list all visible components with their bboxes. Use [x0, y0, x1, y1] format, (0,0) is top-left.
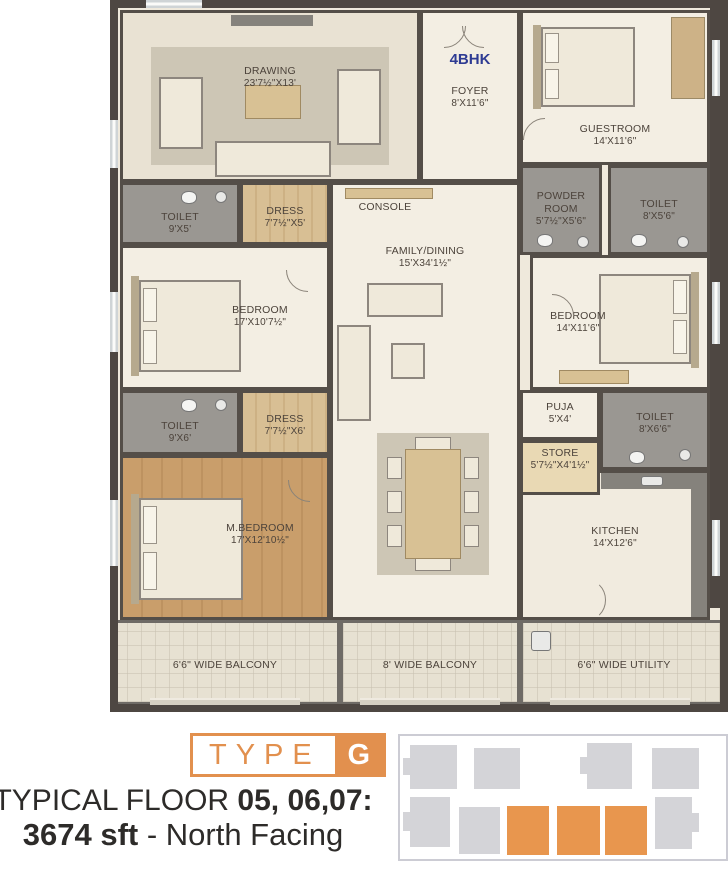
balcony-railing — [550, 698, 690, 705]
room-label-store: STORE 5'7½"X4'1½" — [523, 447, 597, 473]
dining-chair — [387, 525, 402, 547]
room-label-drawing: DRAWING 23'7½"X13' — [123, 65, 417, 91]
dining-chair — [387, 457, 402, 479]
kitchen-sink — [641, 476, 663, 486]
pillow — [143, 330, 157, 364]
key-plan-unit — [474, 748, 520, 789]
window — [712, 282, 720, 344]
key-plan-unit — [459, 807, 500, 854]
room-name: TOILET — [123, 211, 237, 224]
room-name: GUESTROOM — [523, 123, 707, 136]
room-label-kitchen: KITCHEN 14'X12'6" — [523, 525, 707, 551]
wc — [181, 399, 197, 412]
room-utility: 6'6" WIDE UTILITY — [520, 620, 728, 705]
room-label-powder: POWDER ROOM 5'7½"X5'6" — [523, 190, 599, 229]
wc — [629, 451, 645, 464]
key-plan-unit — [410, 797, 450, 847]
caption-area-facing: - North Facing — [138, 817, 343, 852]
room-name: DRAWING — [123, 65, 417, 78]
room-label-toilet-bedroom2: TOILET 8'X6'6" — [603, 411, 707, 437]
bed-headboard — [691, 272, 699, 368]
room-dims: 8'X5'6" — [611, 211, 707, 224]
room-balcony-center: 8' WIDE BALCONY — [340, 620, 520, 705]
room-name: TOILET — [123, 420, 237, 433]
room-label-toilet-guest: TOILET 8'X5'6" — [611, 198, 707, 224]
console-table — [345, 188, 433, 199]
room-dims: 14'X12'6" — [523, 538, 707, 551]
room-name: PUJA — [523, 401, 597, 414]
room-name: POWDER ROOM — [523, 190, 599, 216]
tv-unit — [231, 15, 313, 26]
room-dims: 7'7½"X6' — [243, 426, 327, 439]
sofa — [215, 141, 331, 177]
dining-chair — [464, 525, 479, 547]
room-master-bedroom: M.BEDROOM 17'X12'10½" — [120, 455, 330, 620]
pillow — [545, 69, 559, 99]
room-guestroom: GUESTROOM 14'X11'6" — [520, 10, 710, 165]
room-dims: 5'X4' — [523, 414, 597, 427]
room-name: 6'6" WIDE BALCONY — [113, 659, 337, 672]
room-dims: 8'X6'6" — [603, 424, 707, 437]
bed-headboard — [131, 494, 139, 604]
room-dims: 9'X6' — [123, 433, 237, 446]
room-balcony-left: 6'6" WIDE BALCONY — [110, 620, 340, 705]
room-toilet-bedroom2: TOILET 8'X6'6" — [600, 390, 710, 470]
caption-area-size: 3674 sft — [23, 817, 138, 852]
room-name: TOILET — [611, 198, 707, 211]
caption-floors-prefix: TYPICAL FLOOR — [0, 784, 237, 817]
dining-chair — [415, 558, 451, 571]
room-dims: 15'X34'1½" — [333, 258, 517, 271]
utility-sink — [531, 631, 551, 651]
room-name: FOYER — [423, 85, 517, 98]
room-bedroom1: BEDROOM 17'X10'7½" — [120, 245, 330, 390]
pillow — [673, 320, 687, 354]
key-plan-unit — [652, 748, 699, 789]
console-label: CONSOLE — [333, 201, 437, 214]
room-name: CONSOLE — [333, 201, 437, 214]
dining-table — [405, 449, 461, 559]
room-dims: 7'7½"X5' — [243, 218, 327, 231]
wc — [537, 234, 553, 247]
room-label-toilet1: TOILET 9'X5' — [123, 211, 237, 237]
room-name: KITCHEN — [523, 525, 707, 538]
room-family-dining: CONSOLE FAMILY/DINING 15'X34'1½" — [330, 182, 520, 620]
key-plan-unit — [655, 797, 692, 849]
room-dress-bedroom1: DRESS 7'7½"X5' — [240, 182, 330, 245]
pillow — [143, 506, 157, 544]
room-toilet-bedroom1: TOILET 9'X5' — [120, 182, 240, 245]
room-name: FAMILY/DINING — [333, 245, 517, 258]
pillow — [143, 288, 157, 322]
key-plan — [398, 734, 728, 861]
caption-floors-numbers: 05, 06,07: — [237, 784, 372, 817]
armchair — [391, 343, 425, 379]
room-label-utility: 6'6" WIDE UTILITY — [523, 659, 725, 672]
bench — [559, 370, 629, 384]
room-dims: 8'X11'6" — [423, 98, 517, 111]
type-badge-letter: G — [335, 736, 383, 774]
room-drawing: DRAWING 23'7½"X13' — [120, 10, 420, 182]
room-label-foyer: FOYER 8'X11'6" — [423, 85, 517, 111]
pillow — [545, 33, 559, 63]
room-name: BEDROOM — [533, 310, 623, 323]
key-plan-unit — [410, 745, 457, 789]
room-name: DRESS — [243, 413, 327, 426]
floor-plan: DRAWING 23'7½"X13' 4BHK FOYER 8'X11'6" G… — [110, 0, 728, 712]
room-name: TOILET — [603, 411, 707, 424]
bed-headboard — [131, 276, 139, 376]
room-label-toilet-master: TOILET 9'X6' — [123, 420, 237, 446]
room-label-master-bedroom: M.BEDROOM 17'X12'10½" — [193, 522, 327, 548]
key-plan-unit — [587, 743, 632, 789]
room-label-guestroom: GUESTROOM 14'X11'6" — [523, 123, 707, 149]
room-dims: 9'X5' — [123, 224, 237, 237]
dining-chair — [464, 457, 479, 479]
window — [712, 520, 720, 576]
key-plan-unit-highlighted — [507, 806, 549, 855]
window — [110, 292, 118, 352]
room-label-bedroom2: BEDROOM 14'X11'6" — [533, 310, 623, 336]
room-name: 8' WIDE BALCONY — [343, 659, 517, 672]
room-name: 6'6" WIDE UTILITY — [523, 659, 725, 672]
room-dims: 14'X11'6" — [533, 323, 623, 336]
wardrobe — [671, 17, 705, 99]
balcony-railing — [360, 698, 500, 705]
room-name: BEDROOM — [193, 304, 327, 317]
room-bedroom2: BEDROOM 14'X11'6" — [530, 255, 710, 390]
room-name: STORE — [523, 447, 597, 460]
pillow — [143, 552, 157, 590]
unit-type-label: 4BHK — [423, 51, 517, 68]
room-dress-master: DRESS 7'7½"X6' — [240, 390, 330, 455]
dining-chair — [464, 491, 479, 513]
room-dims: 5'7½"X4'1½" — [523, 460, 597, 473]
floor-plan-page: DRAWING 23'7½"X13' 4BHK FOYER 8'X11'6" G… — [0, 0, 728, 870]
room-name: M.BEDROOM — [193, 522, 327, 535]
caption-floors: TYPICAL FLOOR 05, 06,07: — [0, 784, 374, 818]
balcony-railing — [150, 698, 300, 705]
room-label-dress1: DRESS 7'7½"X5' — [243, 205, 327, 231]
room-dims: 23'7½"X13' — [123, 78, 417, 91]
room-toilet-guest: TOILET 8'X5'6" — [608, 165, 710, 255]
window — [110, 500, 118, 566]
caption-area: 3674 sft - North Facing — [0, 817, 374, 853]
room-dims: 5'7½"X5'6" — [523, 216, 599, 229]
basin — [677, 236, 689, 248]
bed-headboard — [533, 25, 541, 109]
type-badge: TYPE G — [190, 733, 386, 777]
basin — [215, 399, 227, 411]
room-toilet-master: TOILET 9'X6' — [120, 390, 240, 455]
room-dims: 14'X11'6" — [523, 136, 707, 149]
wc — [181, 191, 197, 204]
room-label-bedroom1: BEDROOM 17'X10'7½" — [193, 304, 327, 330]
key-plan-unit-highlighted — [605, 806, 647, 855]
room-dims: 17'X12'10½" — [193, 535, 327, 548]
room-store: STORE 5'7½"X4'1½" — [520, 440, 600, 495]
pillow — [673, 280, 687, 314]
window — [712, 40, 720, 96]
dining-chair — [387, 491, 402, 513]
room-label-puja: PUJA 5'X4' — [523, 401, 597, 427]
window — [146, 0, 202, 8]
sofa-two-seater — [367, 283, 443, 317]
wc — [631, 234, 647, 247]
room-label-balcony-left: 6'6" WIDE BALCONY — [113, 659, 337, 672]
room-powder: POWDER ROOM 5'7½"X5'6" — [520, 165, 602, 255]
room-puja: PUJA 5'X4' — [520, 390, 600, 440]
basin — [679, 449, 691, 461]
room-name: DRESS — [243, 205, 327, 218]
key-plan-unit-highlighted — [557, 806, 600, 855]
room-label-balcony-center: 8' WIDE BALCONY — [343, 659, 517, 672]
sofa-three-seater — [337, 325, 371, 421]
room-label-family: FAMILY/DINING 15'X34'1½" — [333, 245, 517, 271]
basin — [215, 191, 227, 203]
room-dims: 17'X10'7½" — [193, 317, 327, 330]
type-badge-word: TYPE — [193, 736, 335, 774]
basin — [577, 236, 589, 248]
window — [110, 120, 118, 168]
room-label-dress-master: DRESS 7'7½"X6' — [243, 413, 327, 439]
